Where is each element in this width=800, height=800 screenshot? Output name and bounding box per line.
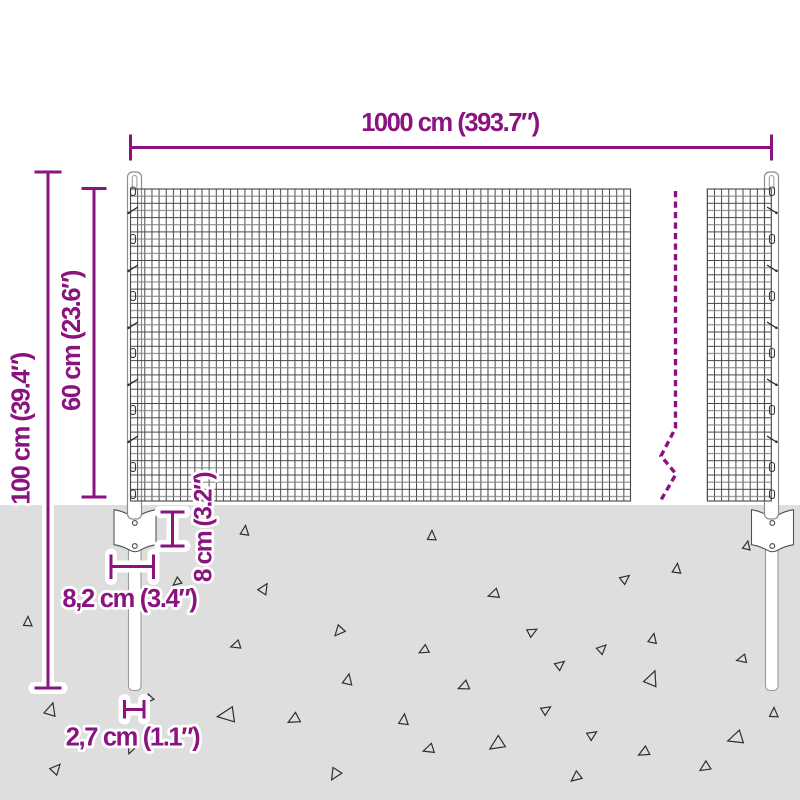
svg-text:60 cm (23.6″): 60 cm (23.6″) [58, 270, 86, 411]
svg-text:8,2 cm (3.4″): 8,2 cm (3.4″) [62, 585, 197, 613]
svg-text:8 cm (3.2″): 8 cm (3.2″) [191, 473, 218, 583]
svg-text:1000 cm (393.7″): 1000 cm (393.7″) [361, 109, 540, 137]
svg-text:2,7 cm (1.1″): 2,7 cm (1.1″) [66, 724, 200, 752]
svg-text:100 cm (39.4″): 100 cm (39.4″) [8, 352, 36, 504]
